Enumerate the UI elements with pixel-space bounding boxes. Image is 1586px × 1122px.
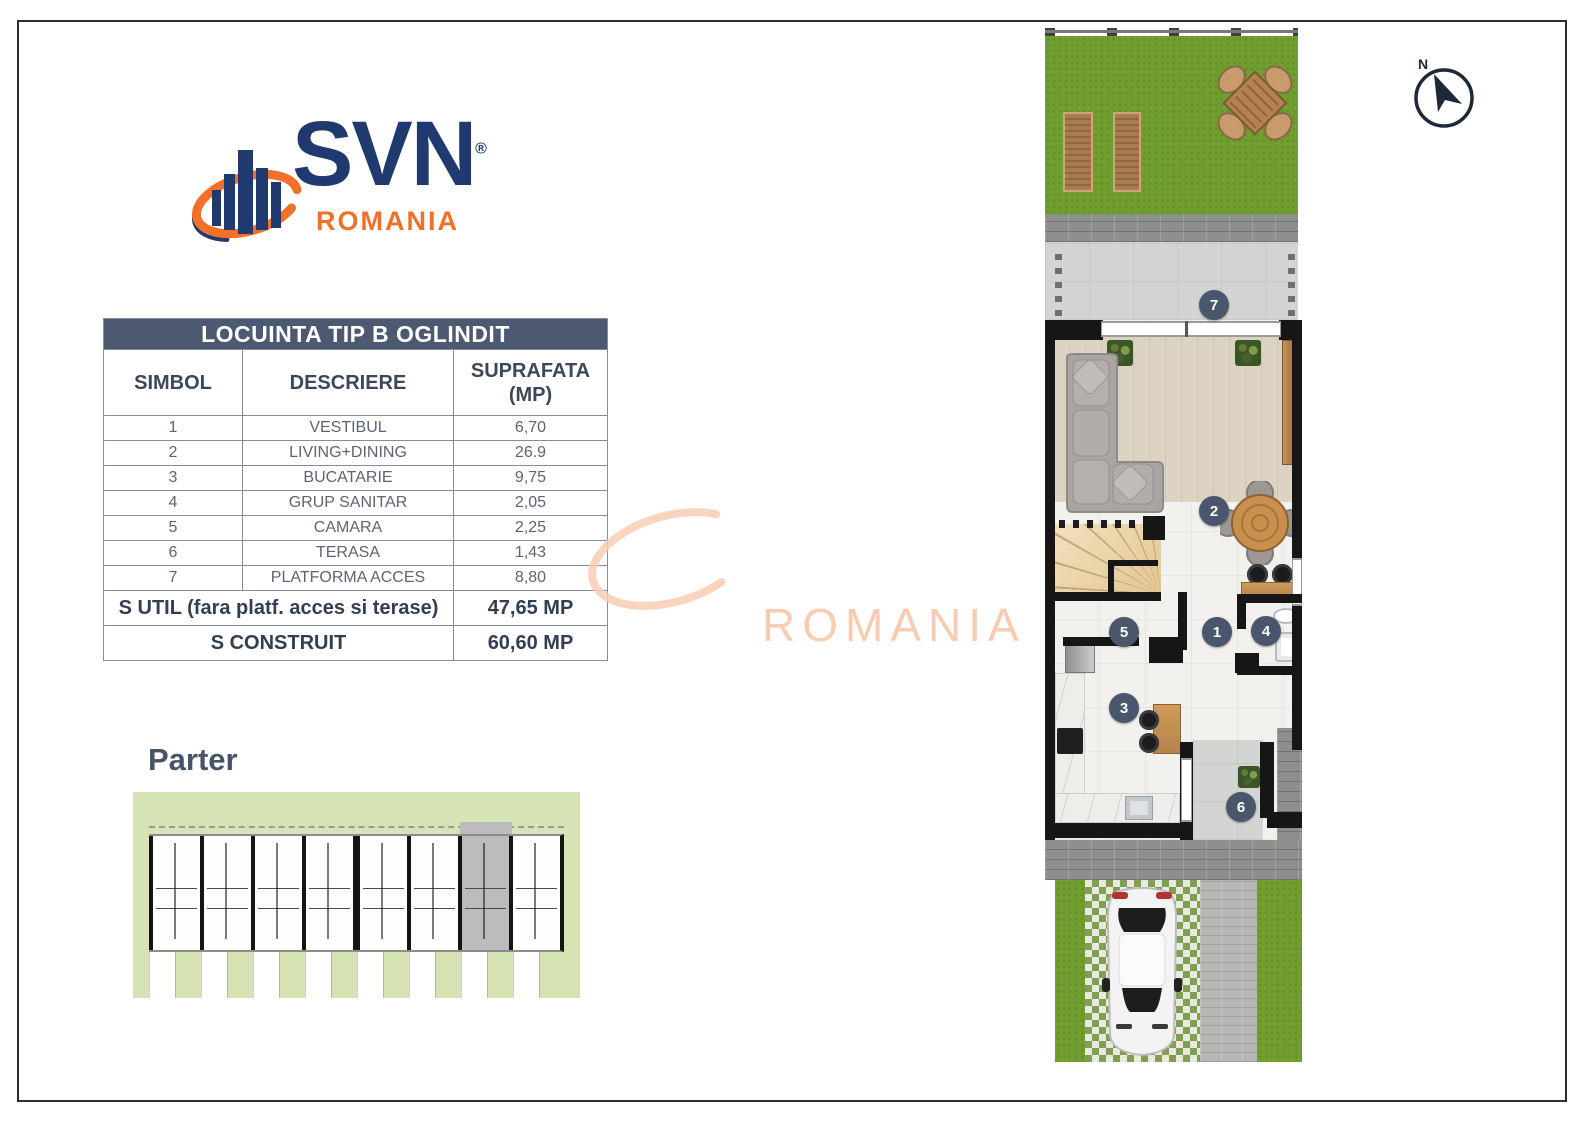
wall <box>1045 320 1055 840</box>
table-row: 1VESTIBUL6,70 <box>104 416 608 441</box>
grass-strip <box>1055 880 1085 1062</box>
fridge <box>1065 643 1095 673</box>
wall <box>1055 592 1161 601</box>
room-marker-3: 3 <box>1109 693 1139 723</box>
site-plan-unit <box>458 836 509 950</box>
stair-railing <box>1059 520 1151 528</box>
summary-row: S CONSTRUIT60,60 MP <box>104 626 608 661</box>
column-header-simbol: SIMBOL <box>104 350 243 416</box>
north-label: N <box>1418 56 1428 72</box>
walkway <box>1045 840 1302 880</box>
wall <box>1149 637 1183 663</box>
site-plan-green-right <box>564 792 580 998</box>
grass-strip <box>1257 880 1302 1062</box>
sun-lounger <box>1113 112 1141 192</box>
terrace-floor <box>1193 740 1263 840</box>
table-title: LOCUINTA TIP B OGLINDIT <box>104 319 608 350</box>
paver-path <box>1200 880 1257 1062</box>
compass: N <box>1398 48 1486 136</box>
kitchen-chair <box>1139 710 1159 730</box>
window <box>1101 321 1281 337</box>
watermark-text: ROMANIA <box>762 598 1026 652</box>
wall <box>1237 594 1302 603</box>
paver-strip <box>1045 214 1298 242</box>
watermark-swoosh-icon <box>583 502 758 617</box>
column-header-descriere: DESCRIERE <box>243 350 454 416</box>
terrace-plant <box>1238 766 1260 788</box>
floor-plan: 7214536 <box>1045 28 1302 1068</box>
room-marker-1: 1 <box>1202 617 1232 647</box>
wall <box>1267 812 1302 828</box>
site-plan-unit <box>509 836 560 950</box>
site-plan-unit <box>302 836 353 950</box>
room-marker-6: 6 <box>1226 792 1256 822</box>
platform-edge <box>1288 250 1295 316</box>
sun-lounger <box>1063 112 1093 192</box>
logo-brand-text: SVN® <box>292 108 487 200</box>
table-row: 4GRUP SANITAR2,05 <box>104 491 608 516</box>
summary-row: S UTIL (fara platf. acces si terase)47,6… <box>104 591 608 626</box>
column-header-suprafata: SUPRAFATA (MP) <box>454 350 608 416</box>
wall <box>1108 560 1158 566</box>
room-marker-5: 5 <box>1109 617 1139 647</box>
compass-icon <box>1398 48 1486 136</box>
platform-edge <box>1055 250 1062 316</box>
site-plan-unit <box>200 836 251 950</box>
areas-table: LOCUINTA TIP B OGLINDIT SIMBOL DESCRIERE… <box>103 318 608 661</box>
window-mullion <box>1185 321 1188 337</box>
wall <box>1292 320 1302 750</box>
kitchen-counter <box>1055 793 1180 823</box>
site-plan-units <box>149 834 564 952</box>
table-row: 5CAMARA2,25 <box>104 516 608 541</box>
site-plan-thumbnail <box>133 786 580 1006</box>
site-plan-unit <box>149 836 200 950</box>
window <box>1181 758 1192 822</box>
site-plan-parking-stalls <box>149 952 564 998</box>
page: SVN® ROMANIA LOCUINTA TIP B OGLINDIT SIM… <box>0 0 1586 1122</box>
table-row: 2LIVING+DINING26.9 <box>104 441 608 466</box>
car <box>1101 884 1183 1058</box>
logo-region-text: ROMANIA <box>316 206 459 237</box>
svn-logo: SVN® ROMANIA <box>190 112 490 262</box>
wall <box>1237 666 1302 675</box>
wall <box>1047 823 1180 838</box>
kitchen-chair <box>1139 733 1159 753</box>
site-plan-green-left <box>133 792 149 998</box>
cooktop <box>1057 728 1083 754</box>
table-row: 7PLATFORMA ACCES8,80 <box>104 566 608 591</box>
floor-label: Parter <box>148 742 238 778</box>
site-plan-unit <box>407 836 458 950</box>
registered-mark: ® <box>475 140 487 157</box>
stair-newel <box>1143 516 1165 540</box>
access-platform <box>1045 242 1298 320</box>
sofa <box>1065 352 1165 532</box>
wall <box>1108 560 1114 596</box>
room-marker-2: 2 <box>1199 496 1229 526</box>
table-row: 6TERASA1,43 <box>104 541 608 566</box>
patio-table-set <box>1210 58 1300 148</box>
room-marker-4: 4 <box>1251 616 1281 646</box>
plant <box>1235 340 1261 366</box>
wall <box>1260 742 1274 818</box>
table-row: 3BUCATARIE9,75 <box>104 466 608 491</box>
wall <box>1237 603 1246 629</box>
room-marker-7: 7 <box>1199 290 1229 320</box>
site-plan-unit <box>353 836 407 950</box>
site-plan-unit <box>251 836 302 950</box>
table-body: 1VESTIBUL6,702LIVING+DINING26.93BUCATARI… <box>104 416 608 661</box>
dining-table-set <box>1220 481 1300 565</box>
kitchen-sink <box>1125 796 1153 820</box>
